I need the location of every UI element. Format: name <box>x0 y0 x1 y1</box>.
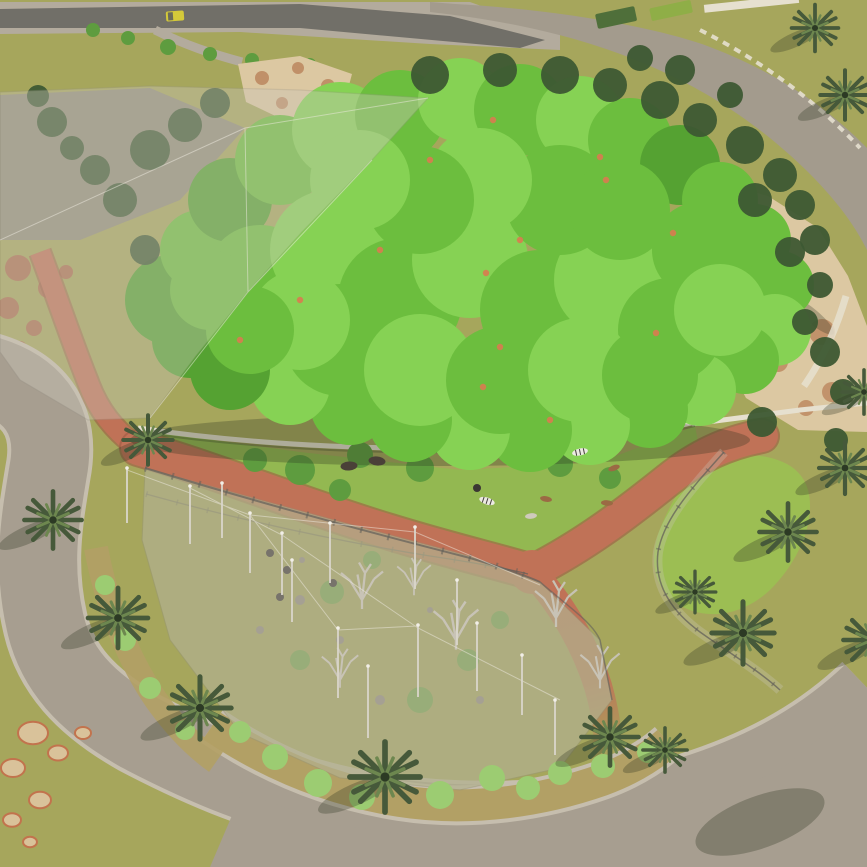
animal-body <box>473 484 481 492</box>
net-pole-cap <box>280 531 284 535</box>
flowering-branch <box>603 177 609 183</box>
palm-tree <box>169 677 231 739</box>
net-pole-cap <box>416 623 420 627</box>
conifer-tree <box>807 272 833 298</box>
palm-tree <box>24 491 81 548</box>
lawn-motif <box>29 792 51 809</box>
canopy-tree <box>674 264 766 356</box>
lawn-motif <box>23 837 37 848</box>
lawn-motif <box>75 727 91 739</box>
palm-tree <box>350 742 420 812</box>
conifer-tree <box>747 407 777 437</box>
flowering-branch <box>427 157 433 163</box>
flowering-branch <box>517 237 523 243</box>
shrub <box>304 769 332 797</box>
palm-tree <box>643 728 687 772</box>
net-pole-cap <box>520 653 524 657</box>
shrub <box>229 721 251 743</box>
flowering-branch <box>237 337 243 343</box>
conifer-tree <box>763 158 797 192</box>
palm-tree <box>88 588 148 648</box>
palm-tree <box>712 602 774 664</box>
flowering-branch <box>547 417 553 423</box>
sand-rock <box>255 71 269 85</box>
conifer-tree <box>641 81 679 119</box>
shrub <box>516 776 540 800</box>
conifer-tree <box>717 82 743 108</box>
cart-cab <box>168 12 174 20</box>
net-pole-cap <box>553 698 557 702</box>
net-pole-cap <box>125 466 129 470</box>
flowering-branch <box>377 247 383 253</box>
paddock-tree <box>329 479 351 501</box>
net-pole-cap <box>290 558 294 562</box>
shrub <box>426 781 454 809</box>
lawn-motif <box>18 722 48 745</box>
palm-tree <box>581 708 638 765</box>
shrub <box>139 677 161 699</box>
palm-tree <box>792 5 839 52</box>
net-pole-cap <box>188 484 192 488</box>
conifer-tree <box>627 45 653 71</box>
service-cart <box>166 10 185 21</box>
net-pole-cap <box>336 626 340 630</box>
shrub <box>262 744 288 770</box>
net-pole-cap <box>328 521 332 525</box>
conifer-tree <box>683 103 717 137</box>
flowering-branch <box>490 117 496 123</box>
shrub <box>95 575 115 595</box>
net-pole-cap <box>455 578 459 582</box>
flowering-branch <box>670 230 676 236</box>
net-pole-cap <box>220 481 224 485</box>
palm-tree <box>123 415 172 464</box>
street-bush <box>121 31 135 45</box>
conifer-tree <box>738 183 772 217</box>
flowering-branch <box>653 330 659 336</box>
conifer-tree <box>775 237 805 267</box>
lawn-motif <box>1 759 25 777</box>
street-bush <box>86 23 100 37</box>
flowering-branch <box>480 384 486 390</box>
street-bush <box>160 39 176 55</box>
net-pole-cap <box>366 664 370 668</box>
conifer-tree <box>411 56 449 94</box>
lawn-motif <box>48 746 68 761</box>
conifer-tree <box>810 337 840 367</box>
sand-rock <box>292 62 304 74</box>
conifer-tree <box>785 190 815 220</box>
shrub <box>479 765 505 791</box>
conifer-tree <box>593 68 627 102</box>
flowering-branch <box>597 154 603 160</box>
animal-ostrich <box>473 484 481 492</box>
palm-tree <box>820 70 867 119</box>
net-pole-cap <box>475 621 479 625</box>
conifer-tree <box>665 55 695 85</box>
lawn-motif <box>3 813 21 827</box>
flowering-branch <box>483 270 489 276</box>
flowering-branch <box>297 297 303 303</box>
palm-tree <box>674 571 716 613</box>
street-bush <box>203 47 217 61</box>
conifer-tree <box>541 56 579 94</box>
canopy-tree <box>602 327 698 423</box>
flowering-branch <box>497 344 503 350</box>
render-viewport <box>0 0 867 867</box>
zoo-aerial-render <box>0 0 867 867</box>
palm-tree <box>759 503 816 560</box>
conifer-tree <box>483 53 517 87</box>
conifer-tree <box>792 309 818 335</box>
net-pole-cap <box>248 511 252 515</box>
net-pole-cap <box>413 525 417 529</box>
conifer-tree <box>726 126 764 164</box>
